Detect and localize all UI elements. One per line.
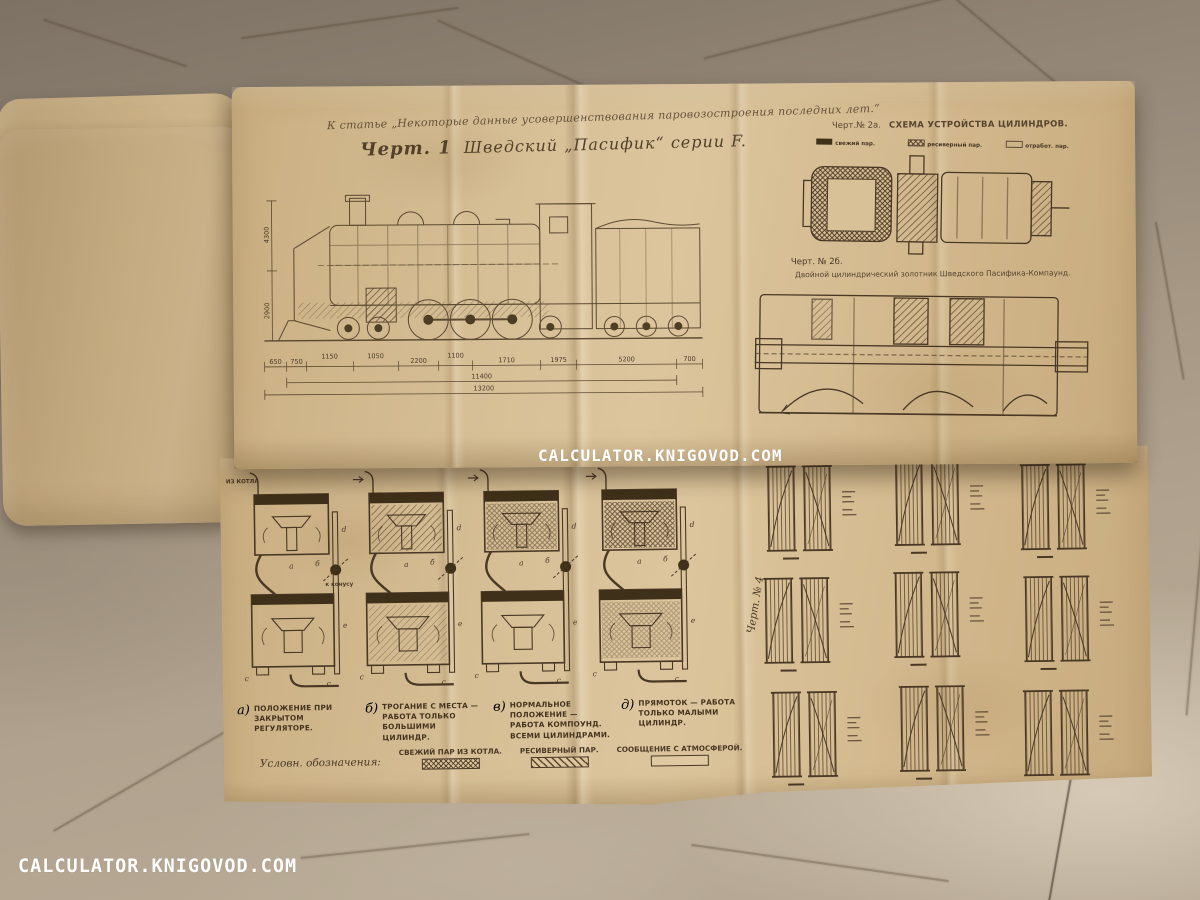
legend-label: Ресиверный пар.	[520, 745, 599, 755]
caption-text: Трогание с места — работа только большим…	[382, 701, 484, 743]
fig1-locomotive-drawing: 650 750 1150 1050 2200 1100 1710 1975 52…	[257, 168, 709, 421]
legend-title: Условн. обозначения:	[260, 756, 381, 772]
marble-vein	[1186, 526, 1200, 715]
fig2a-cylinder-scheme: свежий пар. ресиверный пар. отработ. пар…	[797, 132, 1079, 264]
legend-label: Свежий пар из котла.	[399, 747, 502, 757]
svg-text:5200: 5200	[618, 355, 635, 363]
bypass-diagram-c	[468, 469, 580, 687]
svg-text:отработ. пар.: отработ. пар.	[1025, 142, 1069, 150]
bottom-foldout-sheet: Черт.3а-д. СХЕМА ДЕЙСТВИЯ БАЙПАССА ФЛОДИ…	[220, 446, 1153, 811]
svg-text:4300: 4300	[263, 227, 271, 244]
bypass-diagram-a	[242, 472, 350, 689]
bypass-diagram-b	[353, 470, 465, 688]
legend-item-atmosphere: Сообщение с атмосферой.	[617, 743, 743, 767]
watermark-bottom-left: CALCULATOR.KNIGOVOD.COM	[18, 856, 297, 877]
svg-text:2900: 2900	[263, 303, 271, 320]
svg-text:13200: 13200	[473, 384, 494, 392]
svg-text:1975: 1975	[550, 356, 567, 364]
fig1-title: Черт. 1 Шведский „Пасифик“ серии F.	[354, 130, 747, 161]
svg-text:свежий пар.: свежий пар.	[835, 140, 875, 148]
svg-text:650: 650	[269, 358, 281, 366]
fig1-title-text: Шведский „Пасифик“ серии F.	[464, 131, 748, 157]
fig2a-title: Схема устройства цилиндров.	[889, 119, 1068, 130]
handwritten-note: К статье „Некоторые данные усовершенство…	[327, 102, 880, 132]
legend-item-receiver-steam: Ресиверный пар.	[520, 745, 599, 768]
svg-text:ресиверный пар.: ресиверный пар.	[927, 141, 982, 149]
svg-text:1100: 1100	[447, 352, 464, 360]
fig3-inlet-label: ИЗ КОТЛА	[226, 479, 259, 485]
fig3-caption-b: б) Трогание с места — работа только боль…	[365, 701, 484, 743]
marble-vein	[704, 0, 957, 59]
caption-text: Прямоток — работа только малыми цилиндр.	[638, 697, 739, 739]
fig4-indicator-diagram-grid	[760, 458, 1150, 795]
fig3-caption-d: д) Прямоток — работа только малыми цилин…	[621, 697, 740, 739]
fig3-captions: а) Положение при закрытом регуляторе. б)…	[237, 697, 740, 745]
fig3-caption-a: а) Положение при закрытом регуляторе.	[237, 703, 356, 745]
watermark-center: CALCULATOR.KNIGOVOD.COM	[538, 446, 783, 465]
marble-vein	[53, 730, 227, 831]
svg-text:1710: 1710	[498, 356, 515, 364]
fig3-caption-c: в) Нормальное положение — работа Компоун…	[493, 699, 612, 741]
fig1-number: Черт. 1	[360, 137, 452, 160]
marble-vein	[301, 833, 530, 859]
blank-paper-flap-bottom	[0, 126, 255, 526]
svg-text:11400: 11400	[471, 372, 492, 380]
marble-vein	[43, 19, 186, 67]
legend-swatch-cross-hatch	[421, 758, 479, 770]
caption-letter: в)	[493, 701, 506, 742]
bypass-diagram-d	[586, 467, 698, 685]
top-foldout-sheet: К статье „Некоторые данные усовершенство…	[232, 81, 1138, 469]
svg-text:1050: 1050	[367, 352, 384, 360]
fig3-cone-label: к конусу	[325, 582, 353, 588]
photo-scene: Черт.3а-д. СХЕМА ДЕЙСТВИЯ БАЙПАССА ФЛОДИ…	[0, 0, 1200, 900]
legend-item-fresh-steam: Свежий пар из котла.	[399, 747, 502, 770]
legend-swatch-diagonal-hatch	[530, 756, 588, 768]
marble-vein	[241, 7, 459, 39]
caption-text: Нормальное положение — работа Компоунд. …	[510, 699, 612, 741]
marble-vein	[437, 19, 602, 94]
legend-label: Сообщение с атмосферой.	[617, 743, 743, 754]
marble-vein	[1155, 222, 1184, 380]
caption-letter: б)	[365, 702, 379, 743]
fig3-legend: Условн. обозначения: Свежий пар из котла…	[260, 743, 743, 772]
fig2b-slide-valve-section	[753, 283, 1099, 432]
fig2a-number: Черт.№ 2а.	[832, 121, 881, 131]
fig2a-label: Черт.№ 2а. Схема устройства цилиндров.	[832, 119, 1068, 131]
fig2a-legend: свежий пар. ресиверный пар. отработ. пар…	[816, 139, 1069, 151]
fig2b-label: Черт. № 2б.	[791, 257, 843, 267]
fig3-bypass-diagrams: ИЗ КОТЛА к конусу	[224, 464, 747, 703]
marble-vein	[1046, 765, 1074, 900]
marble-vein	[691, 844, 949, 882]
svg-text:2200: 2200	[410, 357, 427, 365]
caption-letter: а)	[237, 704, 250, 745]
caption-text: Положение при закрытом регуляторе.	[254, 703, 356, 745]
fig2b-caption: Двойной цилиндрический золотник Шведског…	[795, 268, 1071, 279]
svg-text:1150: 1150	[321, 352, 338, 360]
caption-letter: д)	[621, 699, 635, 740]
legend-swatch-empty	[651, 755, 709, 767]
svg-text:700: 700	[683, 355, 695, 363]
svg-text:750: 750	[290, 358, 302, 366]
